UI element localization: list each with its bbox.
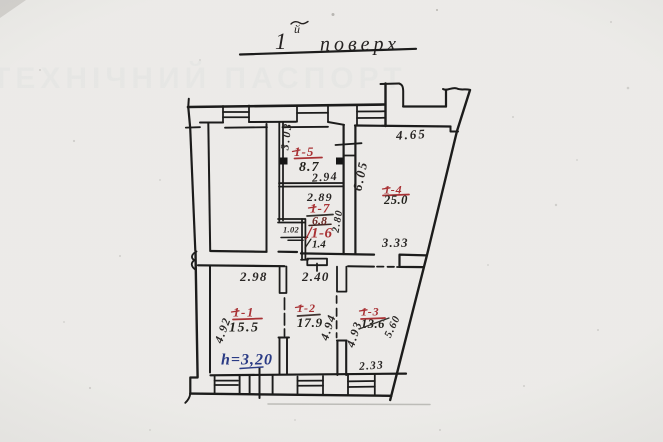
svg-text:1-5: 1-5 [294, 144, 314, 159]
svg-text:3.33: 3.33 [381, 236, 409, 250]
svg-text:17.9: 17.9 [297, 315, 323, 330]
svg-text:25.0: 25.0 [383, 193, 408, 207]
svg-text:2.33: 2.33 [358, 359, 385, 373]
svg-text:1-2: 1-2 [297, 301, 316, 315]
svg-text:1-1: 1-1 [233, 305, 255, 320]
svg-text:1.4: 1.4 [312, 239, 326, 251]
svg-text:1: 1 [275, 29, 287, 54]
svg-text:h=3,20: h=3,20 [221, 352, 273, 369]
svg-text:2.40: 2.40 [301, 269, 330, 284]
svg-text:3.03: 3.03 [279, 121, 294, 151]
svg-text:4.65: 4.65 [395, 126, 427, 143]
svg-text:15.5: 15.5 [229, 321, 260, 336]
svg-text:й: й [294, 22, 300, 36]
svg-text:ТЕХНІЧНИЙ ПАСПОРТ: ТЕХНІЧНИЙ ПАСПОРТ [0, 61, 407, 95]
svg-text:4.93: 4.93 [343, 319, 365, 350]
svg-text:2.89: 2.89 [306, 190, 333, 204]
svg-text:6.8: 6.8 [312, 214, 327, 228]
svg-text:2.94: 2.94 [311, 169, 339, 185]
svg-text:6.05: 6.05 [350, 159, 371, 192]
svg-text:2.98: 2.98 [239, 269, 268, 284]
svg-text:1.02: 1.02 [283, 225, 300, 235]
